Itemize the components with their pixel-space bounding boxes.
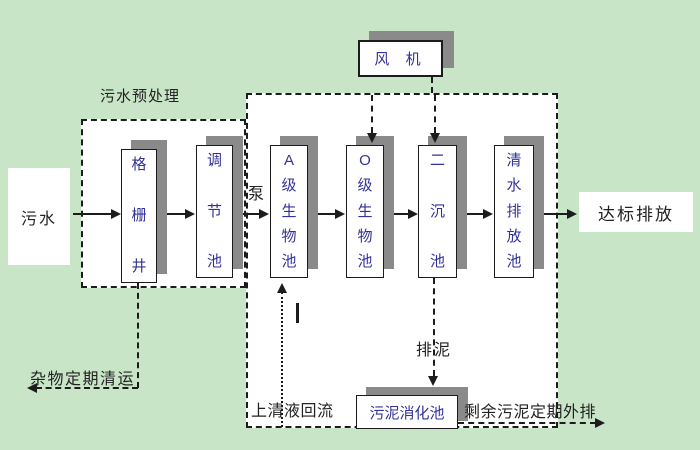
tank-grid-well-label: 格栅井 <box>122 150 156 282</box>
influent-box: 污水 <box>8 168 70 265</box>
tank-a-bio: A级生物池 <box>270 145 308 278</box>
tank-regulating-label: 调节池 <box>197 146 232 277</box>
arrow-down-icon <box>367 133 377 143</box>
digester-box: 污泥消化池 <box>356 395 458 429</box>
air-line <box>434 95 436 133</box>
air-line <box>431 77 433 93</box>
arrow-right-icon <box>567 209 577 219</box>
flow-line <box>384 213 410 215</box>
arrow-down-icon <box>428 376 438 386</box>
flow-line <box>308 213 337 215</box>
blower-box: 风 机 <box>358 40 443 77</box>
tank-secondary-clarifier-label: 二沉池 <box>419 146 456 277</box>
arrow-right-icon <box>185 209 195 219</box>
tank-clear-water: 清水排放池 <box>494 145 534 278</box>
excess-sludge-label: 剩余污泥定期外排 <box>464 398 596 422</box>
effluent-label: 达标排放 <box>598 200 674 225</box>
arrow-right-icon <box>595 418 605 428</box>
sludge-discharge-label: 排泥 <box>416 336 452 360</box>
tick-mark <box>296 303 299 323</box>
arrow-right-icon <box>335 209 345 219</box>
arrow-down-icon <box>430 133 440 143</box>
blower-label: 风 机 <box>374 48 426 69</box>
arrow-right-icon <box>483 209 493 219</box>
tank-regulating: 调节池 <box>196 145 233 278</box>
arrow-right-icon <box>259 209 269 219</box>
influent-label: 污水 <box>21 205 57 229</box>
air-line <box>371 95 373 133</box>
tank-a-bio-label: A级生物池 <box>271 146 307 277</box>
flow-line <box>534 213 569 215</box>
debris-removal-label: 杂物定期清运 <box>30 365 135 389</box>
flow-line <box>158 213 187 215</box>
supernatant-return-label: 上清液回流 <box>251 397 334 421</box>
tank-clear-water-label: 清水排放池 <box>495 146 533 277</box>
tank-grid-well: 格栅井 <box>121 149 157 283</box>
sludge-line <box>433 278 435 376</box>
process-flow-diagram: 格栅井 调节池 A级生物池 O级生物池 二沉池 清水排放池 风 机 污泥消化池 … <box>0 0 700 450</box>
excess-sludge-line <box>458 422 596 424</box>
flow-line <box>457 213 485 215</box>
tank-o-bio: O级生物池 <box>346 145 384 278</box>
arrow-up-icon <box>277 283 287 293</box>
tank-o-bio-label: O级生物池 <box>347 146 383 277</box>
arrow-right-icon <box>408 209 418 219</box>
pump-label: 泵 <box>248 180 265 204</box>
flow-line <box>233 213 261 215</box>
effluent-box: 达标排放 <box>579 192 693 232</box>
arrow-right-icon <box>111 209 121 219</box>
flow-line <box>73 213 113 215</box>
tank-secondary-clarifier: 二沉池 <box>418 145 457 278</box>
debris-line <box>137 283 139 388</box>
digester-label: 污泥消化池 <box>369 402 444 423</box>
pretreatment-title: 污水预处理 <box>100 85 180 106</box>
